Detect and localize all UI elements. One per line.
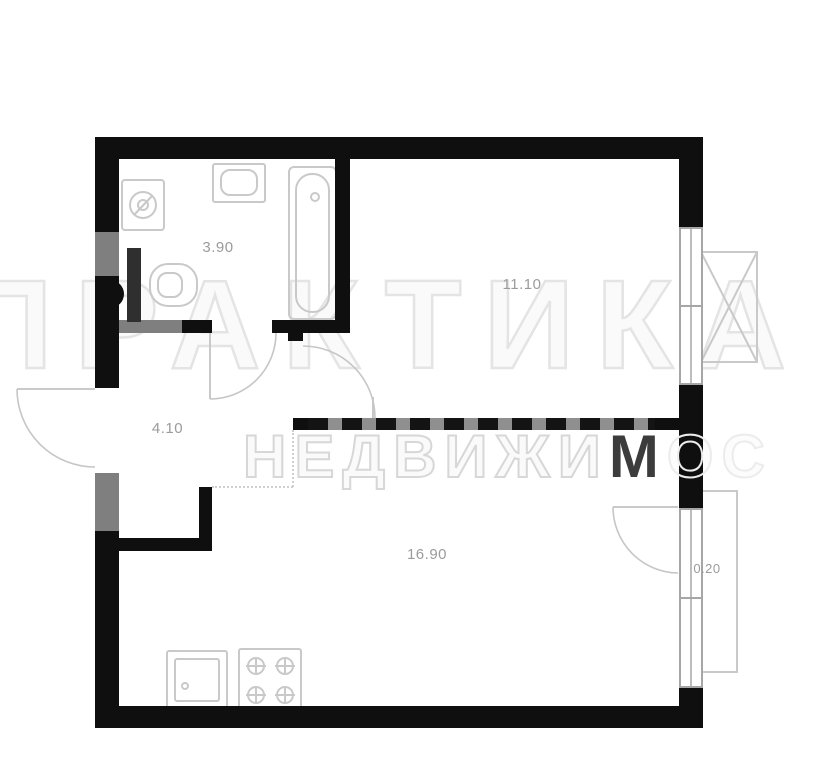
window-icon-balcony [679,508,703,688]
wall-bathroom-side [335,155,350,333]
window-icon-room [679,227,703,385]
wall-right-lower [679,688,703,728]
ac-unit-icon [701,252,757,362]
watermark-line2-dark: М [609,423,667,490]
wall-top [95,137,703,159]
wall-hall-bottom [95,538,212,551]
wall-door-stub [288,333,303,341]
stove-icon [239,649,301,711]
door-swing-icon-room [303,346,375,418]
door-swing-icon-bathroom [210,333,276,399]
wall-right-upper [679,137,703,227]
wall-bathroom-bottom-jamb [182,320,212,333]
toilet-partition [127,248,141,322]
watermark-line2-faint: ОС [667,423,773,490]
watermark-line2: НЕДВИЖИМОС [243,422,773,491]
wall-left-gray-upper [95,232,119,276]
kitchen-sink-icon [167,651,227,709]
area-label-balcony: 0.20 [682,561,732,576]
wall-bathroom-bottom-right [272,320,350,333]
door-swing-icon-balcony [613,507,678,573]
wall-left-gray-lower [95,473,119,531]
balcony-outline [700,491,737,672]
wall-left-lower [95,531,119,728]
washing-machine-icon [122,180,164,230]
floor-plan: ПРАКТИКА [0,0,825,768]
watermark-line2-light: НЕДВИЖИ [243,423,609,490]
bathtub-icon [289,167,336,319]
wall-left-upper [95,137,119,232]
area-label-bathroom: 3.90 [192,239,244,256]
wall-bottom [95,706,703,728]
riser-circle [96,280,124,308]
area-label-living: 16.90 [396,546,458,563]
bathroom-sink-icon [213,164,265,202]
toilet-icon [150,264,197,306]
area-label-room: 11.10 [492,276,552,293]
area-label-hallway: 4.10 [140,420,195,437]
door-swing-icon-entrance [17,389,95,467]
